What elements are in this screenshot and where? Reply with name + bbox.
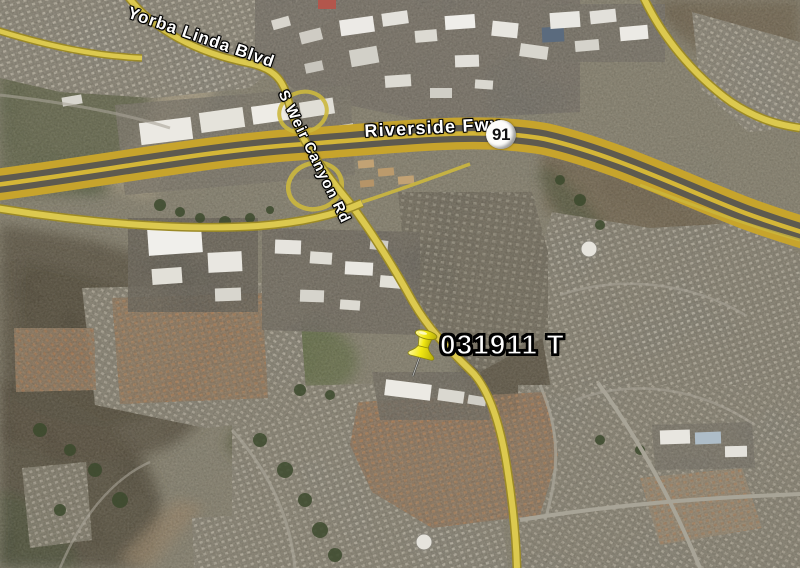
highway-91-number: 91 — [492, 125, 510, 145]
satellite-map[interactable]: Yorba Linda Blvd S Weir Canyon Rd Rivers… — [0, 0, 800, 568]
pushpin-cap — [414, 328, 437, 341]
pushpin-needle-highlight — [413, 357, 420, 377]
placemark-label: 031911 T — [440, 331, 565, 359]
satellite-imagery — [0, 0, 800, 568]
highway-91-shield-icon: 91 — [486, 120, 516, 149]
